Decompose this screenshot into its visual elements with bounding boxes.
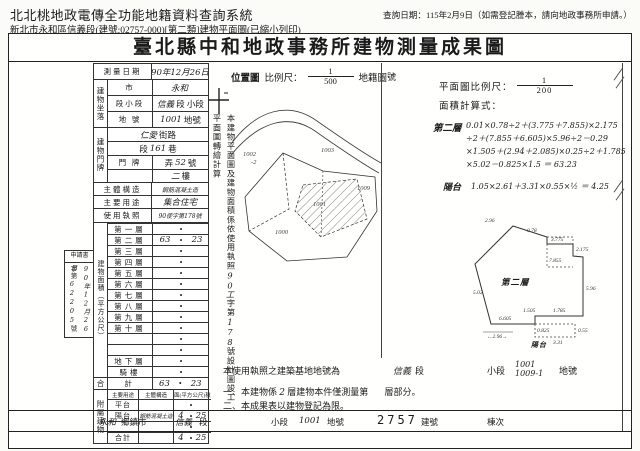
- site-row-suffix: 段 小段: [176, 98, 204, 110]
- plan-dim: 2.175: [576, 247, 588, 253]
- floor-area-int: [153, 224, 177, 234]
- floor-area-dec: [185, 301, 209, 311]
- floor-label: 第九層: [108, 312, 153, 322]
- floor-label: 第七層: [108, 290, 153, 300]
- parcel-label: 1002: [243, 151, 256, 158]
- floor-row: 第十層 •: [108, 322, 209, 333]
- decimal-dot: •: [177, 279, 185, 289]
- building-unit-label: 棟次: [487, 416, 504, 428]
- floor-area-section-label: 建物面積（平方公尺）: [94, 223, 108, 377]
- floor-row: 第九層 •: [108, 311, 209, 322]
- bottom-parcel-row: 永和 鄉鎮市 信義 段 小段 1001 地號 2757 建號 棟次: [9, 413, 631, 431]
- location-scale-numerator: 1: [328, 67, 332, 76]
- door-floor-value: 二: [171, 170, 180, 182]
- door-lane-prefix: 段: [139, 143, 148, 155]
- plan-dim: 3.31: [553, 340, 563, 346]
- floor-label: [108, 345, 153, 355]
- note-handwritten: 178: [225, 317, 235, 347]
- plan-dim: 6.605: [499, 316, 511, 322]
- floor-area-dec: [185, 290, 209, 300]
- floor-area-int: [153, 356, 177, 366]
- door-plate-label: 門 牌: [108, 156, 153, 169]
- scan-tick: [616, 188, 625, 200]
- floor-area-int: [153, 301, 177, 311]
- plan-dim: 0.78: [527, 228, 537, 234]
- site-row-value: 1001: [160, 115, 182, 125]
- door-floor-suffix: 樓: [182, 170, 191, 182]
- floor-row: 第一層 •: [108, 223, 209, 234]
- floor-row: 第七層 •: [108, 289, 209, 300]
- plan-dim: 1.505: [523, 308, 535, 314]
- floor-row: 第六層 •: [108, 278, 209, 289]
- floor-row: 第五層 •: [108, 267, 209, 278]
- license-label: 使用執照: [94, 209, 152, 222]
- floor-area-dec: [185, 268, 209, 278]
- location-map-title: 位置圖: [231, 70, 260, 84]
- decimal-dot: •: [176, 378, 184, 389]
- floor-area-int: [153, 367, 177, 377]
- floor-label: 地下層: [108, 356, 153, 366]
- receipt-date: 90年12月26日: [79, 263, 92, 337]
- site-row-value: 永和: [171, 82, 188, 94]
- door-street-suffix: 街路: [159, 129, 176, 141]
- floor-area-dec: [185, 345, 209, 355]
- floor-plan: 第二層 陽台 2.96 0.78 3.775 2.175 7.855 5.96 …: [435, 204, 627, 362]
- floor-row: 第三層 •: [108, 245, 209, 256]
- note-1-pre: 一、本建物係: [223, 387, 277, 397]
- plan-scale: 平面圖比例尺： 1200: [439, 76, 573, 95]
- location-map: 1002 -2 1003 1009 1000 1001: [225, 89, 387, 289]
- building-number-value: 2757: [377, 413, 418, 427]
- annex-area-header: 面(平方公尺)積: [174, 390, 211, 399]
- site-row-value: 信義: [157, 98, 174, 110]
- floor-area-int: [153, 290, 177, 300]
- annex-use: 合計: [108, 433, 139, 443]
- floor-row: •: [108, 333, 209, 344]
- parcel-label: 1001: [313, 201, 326, 208]
- floor-label: 第三層: [108, 246, 153, 256]
- license-parcel-lead: 本使用執照之建築基地地號為: [223, 364, 340, 377]
- floor-row: 騎樓 •: [108, 366, 209, 377]
- location-map-header: 位置圖 比例尺： 1500 地籍圖: [231, 67, 387, 86]
- area-formula-label: 面積計算式：: [439, 98, 502, 112]
- note-printed: 字第: [226, 299, 235, 317]
- floor-label: 第五層: [108, 268, 153, 278]
- license-parcel-section: 信義: [393, 364, 411, 377]
- site-row-label: 段小段: [108, 96, 153, 111]
- receipt-number-value: 62205: [68, 280, 76, 325]
- floor-area-dec: [185, 224, 209, 234]
- floor-area-int: [153, 246, 177, 256]
- bottom-rule-upper: [9, 410, 631, 411]
- formula-line: ÷2＋(7.855＋6.605)×5.96÷2－0.29: [466, 132, 638, 145]
- note-1-mid: 層建物本件僅測量第: [287, 387, 368, 397]
- license-parcel-seg: 段: [415, 364, 424, 377]
- plan-scale-denominator: 200: [517, 85, 573, 95]
- decimal-dot: •: [177, 246, 185, 256]
- total-outer-label: 合: [94, 378, 108, 389]
- note-1-handwritten: 2: [279, 388, 285, 398]
- building-info-table: 測量日期 90年12月26日 建物坐落 市永和 段小段信義段 小段 地 號100…: [93, 63, 209, 444]
- annex-use-header: 主要用途: [108, 390, 139, 399]
- door-section-label: 建物門牌: [94, 128, 108, 182]
- annex-header-row: 主要用途 主體構造 面(平方公尺)積: [108, 390, 211, 399]
- decimal-dot: •: [177, 257, 185, 267]
- door-lane-suffix: 巷: [168, 143, 177, 155]
- floor-area-dec: [185, 279, 209, 289]
- survey-date-label: 測量日期: [94, 64, 152, 79]
- use-label: 主要用途: [94, 196, 152, 208]
- decimal-dot: •: [177, 224, 185, 234]
- door-street-value: 仁愛: [140, 129, 157, 141]
- floor-area-dec: [185, 323, 209, 333]
- floor-row: 第八層 •: [108, 300, 209, 311]
- site-row-label: 地 號: [108, 112, 153, 127]
- decimal-dot: •: [177, 356, 185, 366]
- license-parcel-subsection: 小段: [487, 364, 505, 377]
- formula-line: ×5.02－0.825×1.5 ＝ 63.23: [466, 158, 638, 171]
- license-parcel-no2: 1009-1: [515, 369, 543, 378]
- decimal-dot: •: [177, 367, 185, 377]
- plan-balcony-label: 陽台: [531, 340, 547, 350]
- bottom-section-label: 段: [199, 416, 208, 428]
- decimal-dot: •: [177, 312, 185, 322]
- floor-label: 第八層: [108, 301, 153, 311]
- formula-line: ×1.505＋(2.94＋2.085)×0.25÷2＋1.785: [466, 145, 638, 158]
- floor-area-dec: 23: [185, 235, 209, 245]
- floor-rows: 第一層 • 第二層 63 • 23 第三層: [108, 223, 209, 377]
- area-total-row: 合 計 63 • 23: [94, 377, 208, 389]
- plan-dim: ←2.96→: [487, 334, 508, 340]
- formula-balcony-line: 1.05×2.61＋3.31×0.55×½ ＝ 4.25: [471, 181, 609, 192]
- formula-balcony-label: 陽台: [443, 180, 461, 193]
- formula-line: 0.01×0.78÷2＋(3.775＋7.855)×2.175: [466, 119, 638, 132]
- bottom-parcel-label: 地號: [327, 416, 344, 428]
- door-plate-spacer: [108, 170, 153, 182]
- door-alley-value: 52: [175, 158, 186, 168]
- floor-label: 第二層: [108, 235, 153, 245]
- door-alley-suffix: 號: [188, 157, 197, 169]
- plan-dim: 7.855: [549, 258, 561, 264]
- annex-row: 平台 •: [108, 399, 211, 410]
- site-section-label: 建物坐落: [94, 80, 108, 127]
- location-scale-label: 比例尺：: [265, 70, 303, 84]
- floor-row: 第四層 •: [108, 256, 209, 267]
- floor-area-int: [153, 345, 177, 355]
- decimal-dot: •: [177, 290, 185, 300]
- door-section: 建物門牌 仁愛街路 段161巷 門 牌弄52號 二樓: [94, 127, 208, 182]
- annex-struct: [139, 433, 174, 443]
- parcel-label: -2: [251, 159, 256, 166]
- site-row-suffix: 地號: [184, 114, 201, 126]
- floor-label: 第六層: [108, 279, 153, 289]
- annex-struct-header: 主體構造: [139, 390, 174, 399]
- plan-floor-label: 第二層: [501, 276, 530, 288]
- floor-area-dec: [185, 257, 209, 267]
- parcel-label: 1003: [321, 147, 334, 154]
- plan-scale-label: 平面圖比例尺：: [439, 79, 513, 93]
- floor-row: 第二層 63 • 23: [108, 234, 209, 245]
- bottom-city-value: 永和: [99, 416, 116, 428]
- floor-area-int: 63: [153, 235, 177, 245]
- bottom-city-label: 鄉鎮市: [121, 416, 147, 428]
- floor-label: [108, 334, 153, 344]
- annex-area-int: [174, 400, 188, 410]
- note-1: 一、本建物係 2 層建物本件僅測量第 層部分。: [223, 385, 421, 398]
- structure-value: 鋼筋混凝土造: [152, 183, 208, 195]
- annex-area-dec: 25: [194, 433, 208, 443]
- formula-floor2-lines: 0.01×0.78÷2＋(3.775＋7.855)×2.175 ÷2＋(7.85…: [466, 119, 638, 171]
- number-label: 號: [387, 70, 396, 83]
- decimal-dot: •: [177, 334, 185, 344]
- floor-area-int: [153, 257, 177, 267]
- plan-dim: 1.785: [553, 308, 565, 314]
- floor-area-dec: [185, 356, 209, 366]
- receipt-number-suffix: 號: [69, 325, 76, 333]
- decimal-dot: •: [177, 323, 185, 333]
- annex-area-int: 4: [174, 433, 188, 443]
- site-row-label: 市: [108, 80, 153, 95]
- decimal-dot: •: [177, 345, 185, 355]
- annex-row: 合計 4 • 25: [108, 432, 211, 443]
- decimal-dot: •: [177, 268, 185, 278]
- floor-label: 騎樓: [108, 367, 153, 377]
- door-lane-value: 161: [150, 144, 166, 154]
- decimal-dot: •: [177, 235, 185, 245]
- bottom-subsection-label: 小段: [271, 416, 288, 428]
- receipt-label: 申請書: [65, 251, 94, 263]
- floor-area-int: [153, 334, 177, 344]
- floor-label: 第一層: [108, 224, 153, 234]
- license-parcel-tail: 地號: [559, 364, 577, 377]
- plan-dim: 0.55: [578, 328, 588, 334]
- receipt-number: 字第62205號: [65, 263, 79, 337]
- total-dec: 23: [184, 378, 208, 389]
- survey-document: 臺北縣中和地政事務所建物測量成果圖 申請書 字第62205號 90年12月26日…: [8, 33, 632, 449]
- parcel-label: 1009: [357, 185, 370, 192]
- annex-use: 平台: [108, 400, 139, 410]
- floor-area-dec: [185, 334, 209, 344]
- floor-area-dec: [185, 312, 209, 322]
- floor-area-int: [153, 268, 177, 278]
- floor-area-dec: [185, 246, 209, 256]
- plan-dim: 5.02: [473, 290, 483, 296]
- plan-dim: 5.96: [586, 286, 596, 292]
- bottom-rule-lower: [9, 431, 631, 432]
- use-value: 集合住宅: [152, 196, 208, 208]
- floor-row: •: [108, 344, 209, 355]
- section-divider: [381, 63, 382, 358]
- floor-area-int: [153, 279, 177, 289]
- license-parcel-no1: 1001: [515, 360, 535, 369]
- receipt-box: 申請書 字第62205號 90年12月26日: [64, 250, 95, 338]
- floor-label: 第十層: [108, 323, 153, 333]
- floor-row: 地下層 •: [108, 355, 209, 366]
- cadastral-map-label: 地籍圖: [359, 70, 388, 84]
- door-alley-prefix: 弄: [165, 157, 174, 169]
- formula-floor2-label: 第二層: [433, 120, 462, 134]
- survey-date-value: 90年12月26日: [152, 64, 208, 79]
- bottom-section-value: 信義: [175, 416, 192, 428]
- bottom-parcel-value: 1001: [299, 416, 321, 426]
- document-title: 臺北縣中和地政事務所建物測量成果圖: [9, 34, 631, 62]
- annex-struct: [139, 400, 174, 410]
- floor-label: 第四層: [108, 257, 153, 267]
- total-label: 計: [108, 378, 153, 389]
- annex-area-dec: [194, 400, 208, 410]
- plan-scale-numerator: 1: [542, 76, 547, 85]
- structure-label: 主體構造: [94, 183, 152, 195]
- floor-area-dec: [185, 367, 209, 377]
- scan-tick: [616, 76, 625, 88]
- floor-area-int: [153, 312, 177, 322]
- plan-dim: 2.96: [485, 218, 495, 224]
- note-1-tail: 層部分。: [385, 387, 421, 397]
- site-section: 建物坐落 市永和 段小段信義段 小段 地 號1001地號: [94, 79, 208, 127]
- plan-dim: 0.825: [537, 328, 549, 334]
- floor-area-section: 建物面積（平方公尺） 第一層 • 第二層 63 • 23: [94, 222, 208, 377]
- building-number-label: 建號: [421, 416, 438, 428]
- license-value: 90使字第178號: [152, 209, 208, 222]
- query-date: 查詢日期：115年2月9日（如需登記謄本，請向地政事務所申請。）: [383, 9, 632, 21]
- plan-dim: 3.775: [551, 237, 563, 243]
- decimal-dot: •: [177, 301, 185, 311]
- location-scale-denominator: 500: [308, 76, 354, 86]
- floor-area-int: [153, 323, 177, 333]
- total-int: 63: [153, 378, 177, 389]
- parcel-label: 1000: [275, 229, 288, 236]
